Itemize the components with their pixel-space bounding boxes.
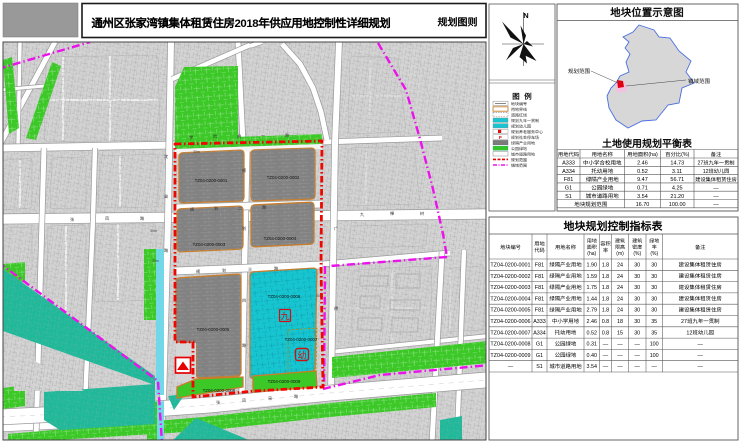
svg-text:30m: 30m <box>150 229 157 233</box>
svg-text:(ha): (ha) <box>648 152 658 158</box>
svg-text:S1: S1 <box>565 194 572 200</box>
svg-text:2.79: 2.79 <box>587 308 598 314</box>
svg-text:1.8: 1.8 <box>602 308 610 314</box>
svg-text:TZ04-0200-0004: TZ04-0200-0004 <box>490 296 530 302</box>
svg-text:—: — <box>652 364 658 370</box>
svg-text:1.59: 1.59 <box>587 274 598 280</box>
svg-text:1.90: 1.90 <box>587 263 598 269</box>
svg-text:P: P <box>499 135 502 140</box>
svg-text:TZ04-0200-0002: TZ04-0200-0002 <box>267 175 300 180</box>
svg-text:A333: A333 <box>533 319 546 325</box>
svg-text:100.00: 100.00 <box>669 202 686 208</box>
svg-text:1.75: 1.75 <box>587 285 598 291</box>
svg-text:24: 24 <box>617 285 623 291</box>
svg-text:TZ04-0200-0005: TZ04-0200-0005 <box>197 327 230 332</box>
svg-text:(%): (%) <box>650 251 658 257</box>
svg-text:F81: F81 <box>535 308 544 314</box>
svg-text:3.11: 3.11 <box>672 169 682 175</box>
svg-text:—: — <box>698 342 704 348</box>
svg-text:1.8: 1.8 <box>602 274 610 280</box>
svg-text:30: 30 <box>651 308 657 314</box>
svg-text:100: 100 <box>650 353 659 359</box>
svg-text:30: 30 <box>651 285 657 291</box>
svg-text:A334: A334 <box>562 169 575 175</box>
svg-text:30: 30 <box>651 274 657 280</box>
svg-text:1.8: 1.8 <box>602 263 610 269</box>
svg-text:0.31: 0.31 <box>587 342 598 348</box>
svg-text:TZ04-0200-0004: TZ04-0200-0004 <box>264 236 297 241</box>
svg-text:1.8: 1.8 <box>602 285 610 291</box>
svg-text:2018: 2018 <box>235 18 259 30</box>
svg-text:TZ04-0200-0001: TZ04-0200-0001 <box>195 178 228 183</box>
svg-text:—: — <box>713 202 719 208</box>
svg-text:—: — <box>617 342 623 348</box>
svg-text:30: 30 <box>634 274 640 280</box>
svg-text:30: 30 <box>634 308 640 314</box>
svg-text:(%): (%) <box>681 152 689 158</box>
svg-text:—: — <box>603 342 609 348</box>
svg-text:30: 30 <box>651 263 657 269</box>
svg-text:14.73: 14.73 <box>670 161 684 167</box>
svg-text:27: 27 <box>681 319 687 325</box>
svg-text:TZ04-0200-0002: TZ04-0200-0002 <box>490 274 530 280</box>
svg-text:TZ04-0200-0009: TZ04-0200-0009 <box>268 379 301 384</box>
svg-text:100: 100 <box>650 342 659 348</box>
svg-text:9.47: 9.47 <box>637 177 648 183</box>
svg-text:30: 30 <box>634 296 640 302</box>
svg-text:2.46: 2.46 <box>587 319 598 325</box>
svg-text:TZ04-0200-0009: TZ04-0200-0009 <box>490 353 530 359</box>
svg-text:G1: G1 <box>565 186 572 192</box>
svg-text:G1: G1 <box>536 353 543 359</box>
svg-text:(m): (m) <box>616 251 624 257</box>
svg-text:TZ04-0200-0006: TZ04-0200-0006 <box>490 319 530 325</box>
svg-text:—: — <box>635 353 641 359</box>
svg-text:—: — <box>508 364 514 370</box>
svg-text:—: — <box>617 353 623 359</box>
svg-text:TZ04-0200-0003: TZ04-0200-0003 <box>193 242 226 247</box>
svg-text:TZ04-0200-0007: TZ04-0200-0007 <box>490 330 530 336</box>
svg-text:35: 35 <box>651 319 657 325</box>
svg-text:0.52: 0.52 <box>587 330 598 336</box>
svg-text:TZ04-0200-0003: TZ04-0200-0003 <box>490 285 530 291</box>
svg-text:TZ04-0200-0008: TZ04-0200-0008 <box>490 342 530 348</box>
svg-text:F81: F81 <box>564 177 573 183</box>
svg-text:4.25: 4.25 <box>672 186 683 192</box>
svg-text:TZ04-0200-0007: TZ04-0200-0007 <box>285 337 318 342</box>
svg-text:TZ04-0200-0006: TZ04-0200-0006 <box>268 294 301 299</box>
svg-text:15: 15 <box>617 330 623 336</box>
svg-text:S1: S1 <box>536 364 543 370</box>
svg-text:56.71: 56.71 <box>670 177 684 183</box>
svg-text:N: N <box>523 11 528 20</box>
svg-text:—: — <box>635 364 641 370</box>
svg-text:0.40: 0.40 <box>587 353 598 359</box>
svg-text:27: 27 <box>698 161 704 167</box>
svg-text:(%): (%) <box>633 251 641 257</box>
svg-text:0.8: 0.8 <box>602 330 610 336</box>
svg-text:12: 12 <box>686 330 692 336</box>
svg-text:0.71: 0.71 <box>637 186 648 192</box>
svg-text:F81: F81 <box>535 296 544 302</box>
svg-text:F81: F81 <box>535 285 544 291</box>
svg-text:1.8: 1.8 <box>602 296 610 302</box>
svg-text:—: — <box>713 186 719 192</box>
svg-text:24: 24 <box>617 274 623 280</box>
svg-text:TZ04-0200-0001: TZ04-0200-0001 <box>490 263 530 269</box>
svg-text:30: 30 <box>651 296 657 302</box>
svg-text:30: 30 <box>634 263 640 269</box>
svg-text:F81: F81 <box>535 274 544 280</box>
svg-text:24: 24 <box>617 263 623 269</box>
svg-text:30: 30 <box>634 285 640 291</box>
svg-text:35: 35 <box>651 330 657 336</box>
svg-text:—: — <box>617 364 623 370</box>
svg-text:(ha): (ha) <box>587 251 596 257</box>
svg-text:TZ04-0200-0005: TZ04-0200-0005 <box>490 308 530 314</box>
svg-text:F81: F81 <box>535 263 544 269</box>
svg-text:30: 30 <box>634 330 640 336</box>
svg-text:—: — <box>635 342 641 348</box>
svg-text:30: 30 <box>634 319 640 325</box>
svg-text:2.46: 2.46 <box>637 161 648 167</box>
svg-text:24: 24 <box>617 308 623 314</box>
svg-text:0.8: 0.8 <box>602 319 610 325</box>
svg-text:A333: A333 <box>562 161 575 167</box>
svg-text:G1: G1 <box>536 342 543 348</box>
svg-text:0.52: 0.52 <box>637 169 648 175</box>
svg-text:A334: A334 <box>533 330 546 336</box>
svg-text:12: 12 <box>703 169 709 175</box>
svg-text:—: — <box>698 364 704 370</box>
svg-text:30m: 30m <box>152 259 159 263</box>
svg-text:3.54: 3.54 <box>637 194 648 200</box>
svg-text:1.44: 1.44 <box>587 296 598 302</box>
svg-text:—: — <box>713 194 719 200</box>
svg-text:—: — <box>698 353 704 359</box>
svg-text:30m: 30m <box>193 150 200 154</box>
svg-text:—: — <box>603 364 609 370</box>
svg-text:—: — <box>603 353 609 359</box>
svg-text:18: 18 <box>617 319 623 325</box>
svg-text:3.54: 3.54 <box>587 364 598 370</box>
svg-text:24: 24 <box>617 296 623 302</box>
svg-text:21.20: 21.20 <box>670 194 684 200</box>
svg-text:16.70: 16.70 <box>636 202 650 208</box>
